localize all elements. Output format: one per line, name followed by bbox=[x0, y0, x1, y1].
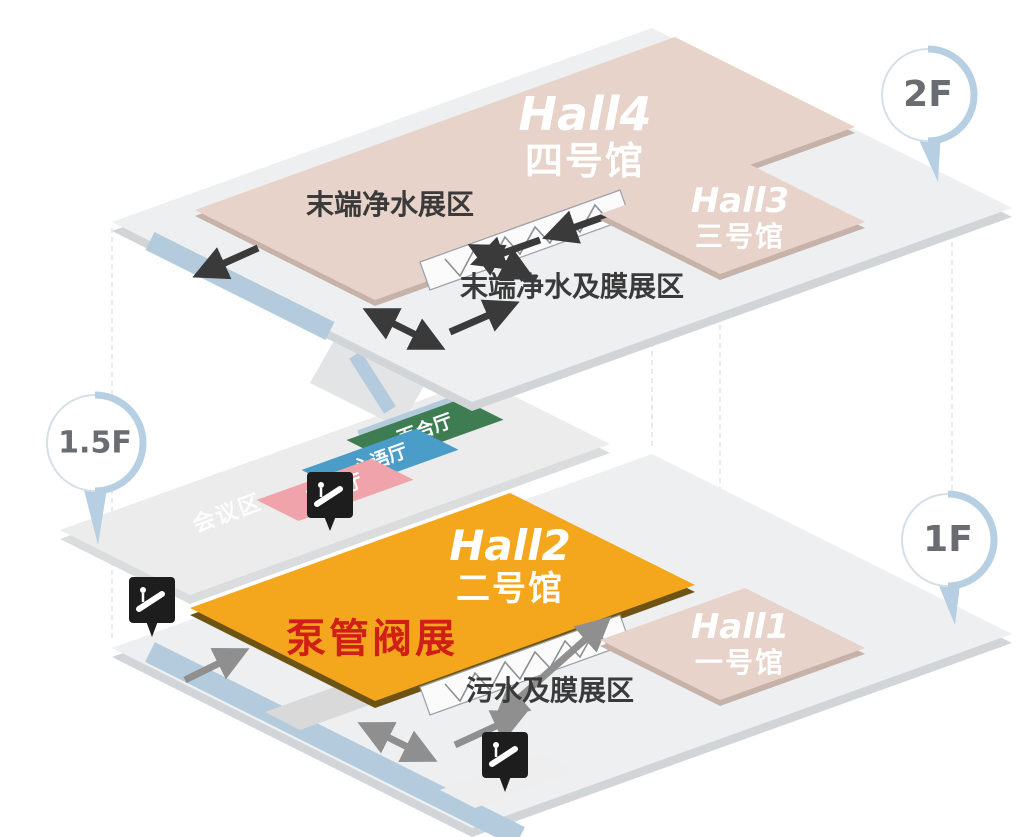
hall3-name-cn: 三号馆 bbox=[695, 220, 785, 253]
hall2-name-en: Hall2 bbox=[449, 521, 571, 570]
exhibition-floor-map: 会议区 百合厅 心语厅 蔷薇厅 Hall4 四号馆 末端净水展区 bbox=[0, 0, 1024, 837]
escalator-glyph-person-head bbox=[140, 587, 146, 593]
hall2-name-cn: 二号馆 bbox=[456, 569, 564, 609]
hall3-name-en: Hall3 bbox=[691, 181, 789, 221]
pin-2f-label: 2F bbox=[903, 74, 953, 115]
zone-label-terminal-water-membrane: 末端净水及膜展区 bbox=[460, 270, 684, 303]
floor-map-canvas: 会议区 百合厅 心语厅 蔷薇厅 Hall4 四号馆 末端净水展区 bbox=[0, 0, 1024, 837]
zone-label-sewage-membrane: 污水及膜展区 bbox=[466, 674, 634, 707]
hall1-name-cn: 一号馆 bbox=[695, 646, 785, 679]
hall4-name-cn: 四号馆 bbox=[525, 139, 645, 183]
hall1-name-en: Hall1 bbox=[691, 607, 789, 647]
hall4-name-en: Hall4 bbox=[518, 87, 651, 141]
escalator-glyph-person-head bbox=[493, 742, 499, 748]
pin-1f-label: 1F bbox=[923, 519, 973, 560]
escalator-glyph-person-head bbox=[318, 482, 324, 488]
pin-1-5f-label: 1.5F bbox=[58, 426, 132, 461]
zone-label-terminal-water: 末端净水展区 bbox=[306, 188, 474, 221]
pump-pipe-valve-expo-label: 泵管阀展 bbox=[286, 616, 458, 662]
